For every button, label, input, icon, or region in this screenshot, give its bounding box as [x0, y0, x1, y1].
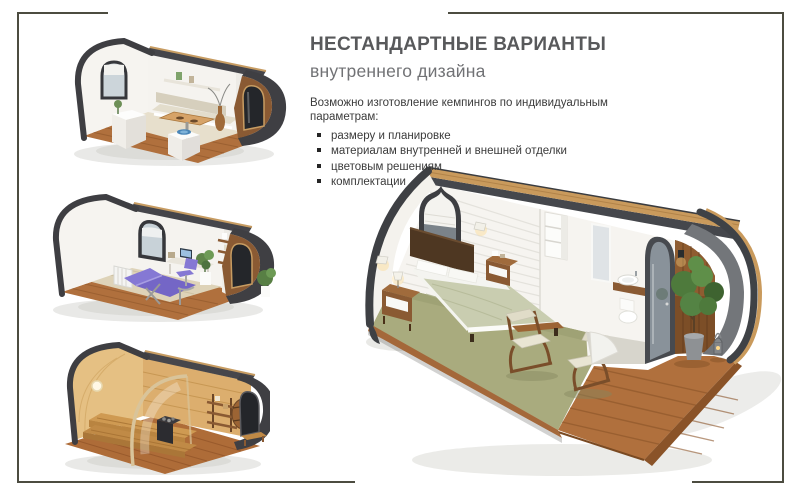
frame-border-top-right [448, 12, 784, 14]
slide-text: НЕСТАНДАРТНЫЕ ВАРИАНТЫ внутреннего дизай… [310, 34, 650, 191]
bullet-text: цветовым решениям [331, 160, 442, 176]
intro-text: Возможно изготовление кемпингов по индив… [310, 96, 650, 125]
page-subtitle: внутреннего дизайна [310, 61, 650, 81]
arched-window [140, 222, 164, 260]
frame-border-bottom-right [692, 481, 784, 483]
massage-pod-illustration [28, 178, 283, 330]
bullet-text: материалам внутренней и внешней отделки [331, 144, 567, 160]
bullet-list: размеру и планировке материалам внутренн… [310, 129, 650, 191]
bullet-text: размеру и планировке [331, 129, 451, 145]
square-bullet-icon [317, 164, 321, 168]
bullet-item: цветовым решениям [310, 160, 650, 176]
square-bullet-icon [317, 148, 321, 152]
square-bullet-icon [317, 133, 321, 137]
bullet-text: комплектации [331, 175, 406, 191]
dining-pod-illustration [48, 18, 293, 176]
figure-dining-pod [48, 18, 293, 176]
square-bullet-icon [317, 179, 321, 183]
frame-border-right [782, 12, 784, 483]
bedroom-pod-illustration [362, 164, 794, 494]
figure-massage-pod [28, 178, 283, 330]
page-title: НЕСТАНДАРТНЫЕ ВАРИАНТЫ [310, 34, 650, 56]
right-cap-door [234, 70, 286, 146]
frame-border-top-left [17, 12, 108, 14]
arched-window [102, 62, 126, 98]
figure-sauna-pod [45, 324, 270, 482]
bullet-item: комплектации [310, 175, 650, 191]
slide-canvas: НЕСТАНДАРТНЫЕ ВАРИАНТЫ внутреннего дизай… [0, 0, 800, 500]
bullet-item: материалам внутренней и внешней отделки [310, 144, 650, 160]
sauna-pod-illustration [45, 324, 270, 482]
glass-door [645, 237, 675, 364]
frame-border-left [17, 12, 19, 483]
frame-border-bottom-left [17, 481, 355, 483]
bullet-item: размеру и планировке [310, 129, 650, 145]
figure-bedroom-pod [362, 164, 794, 494]
